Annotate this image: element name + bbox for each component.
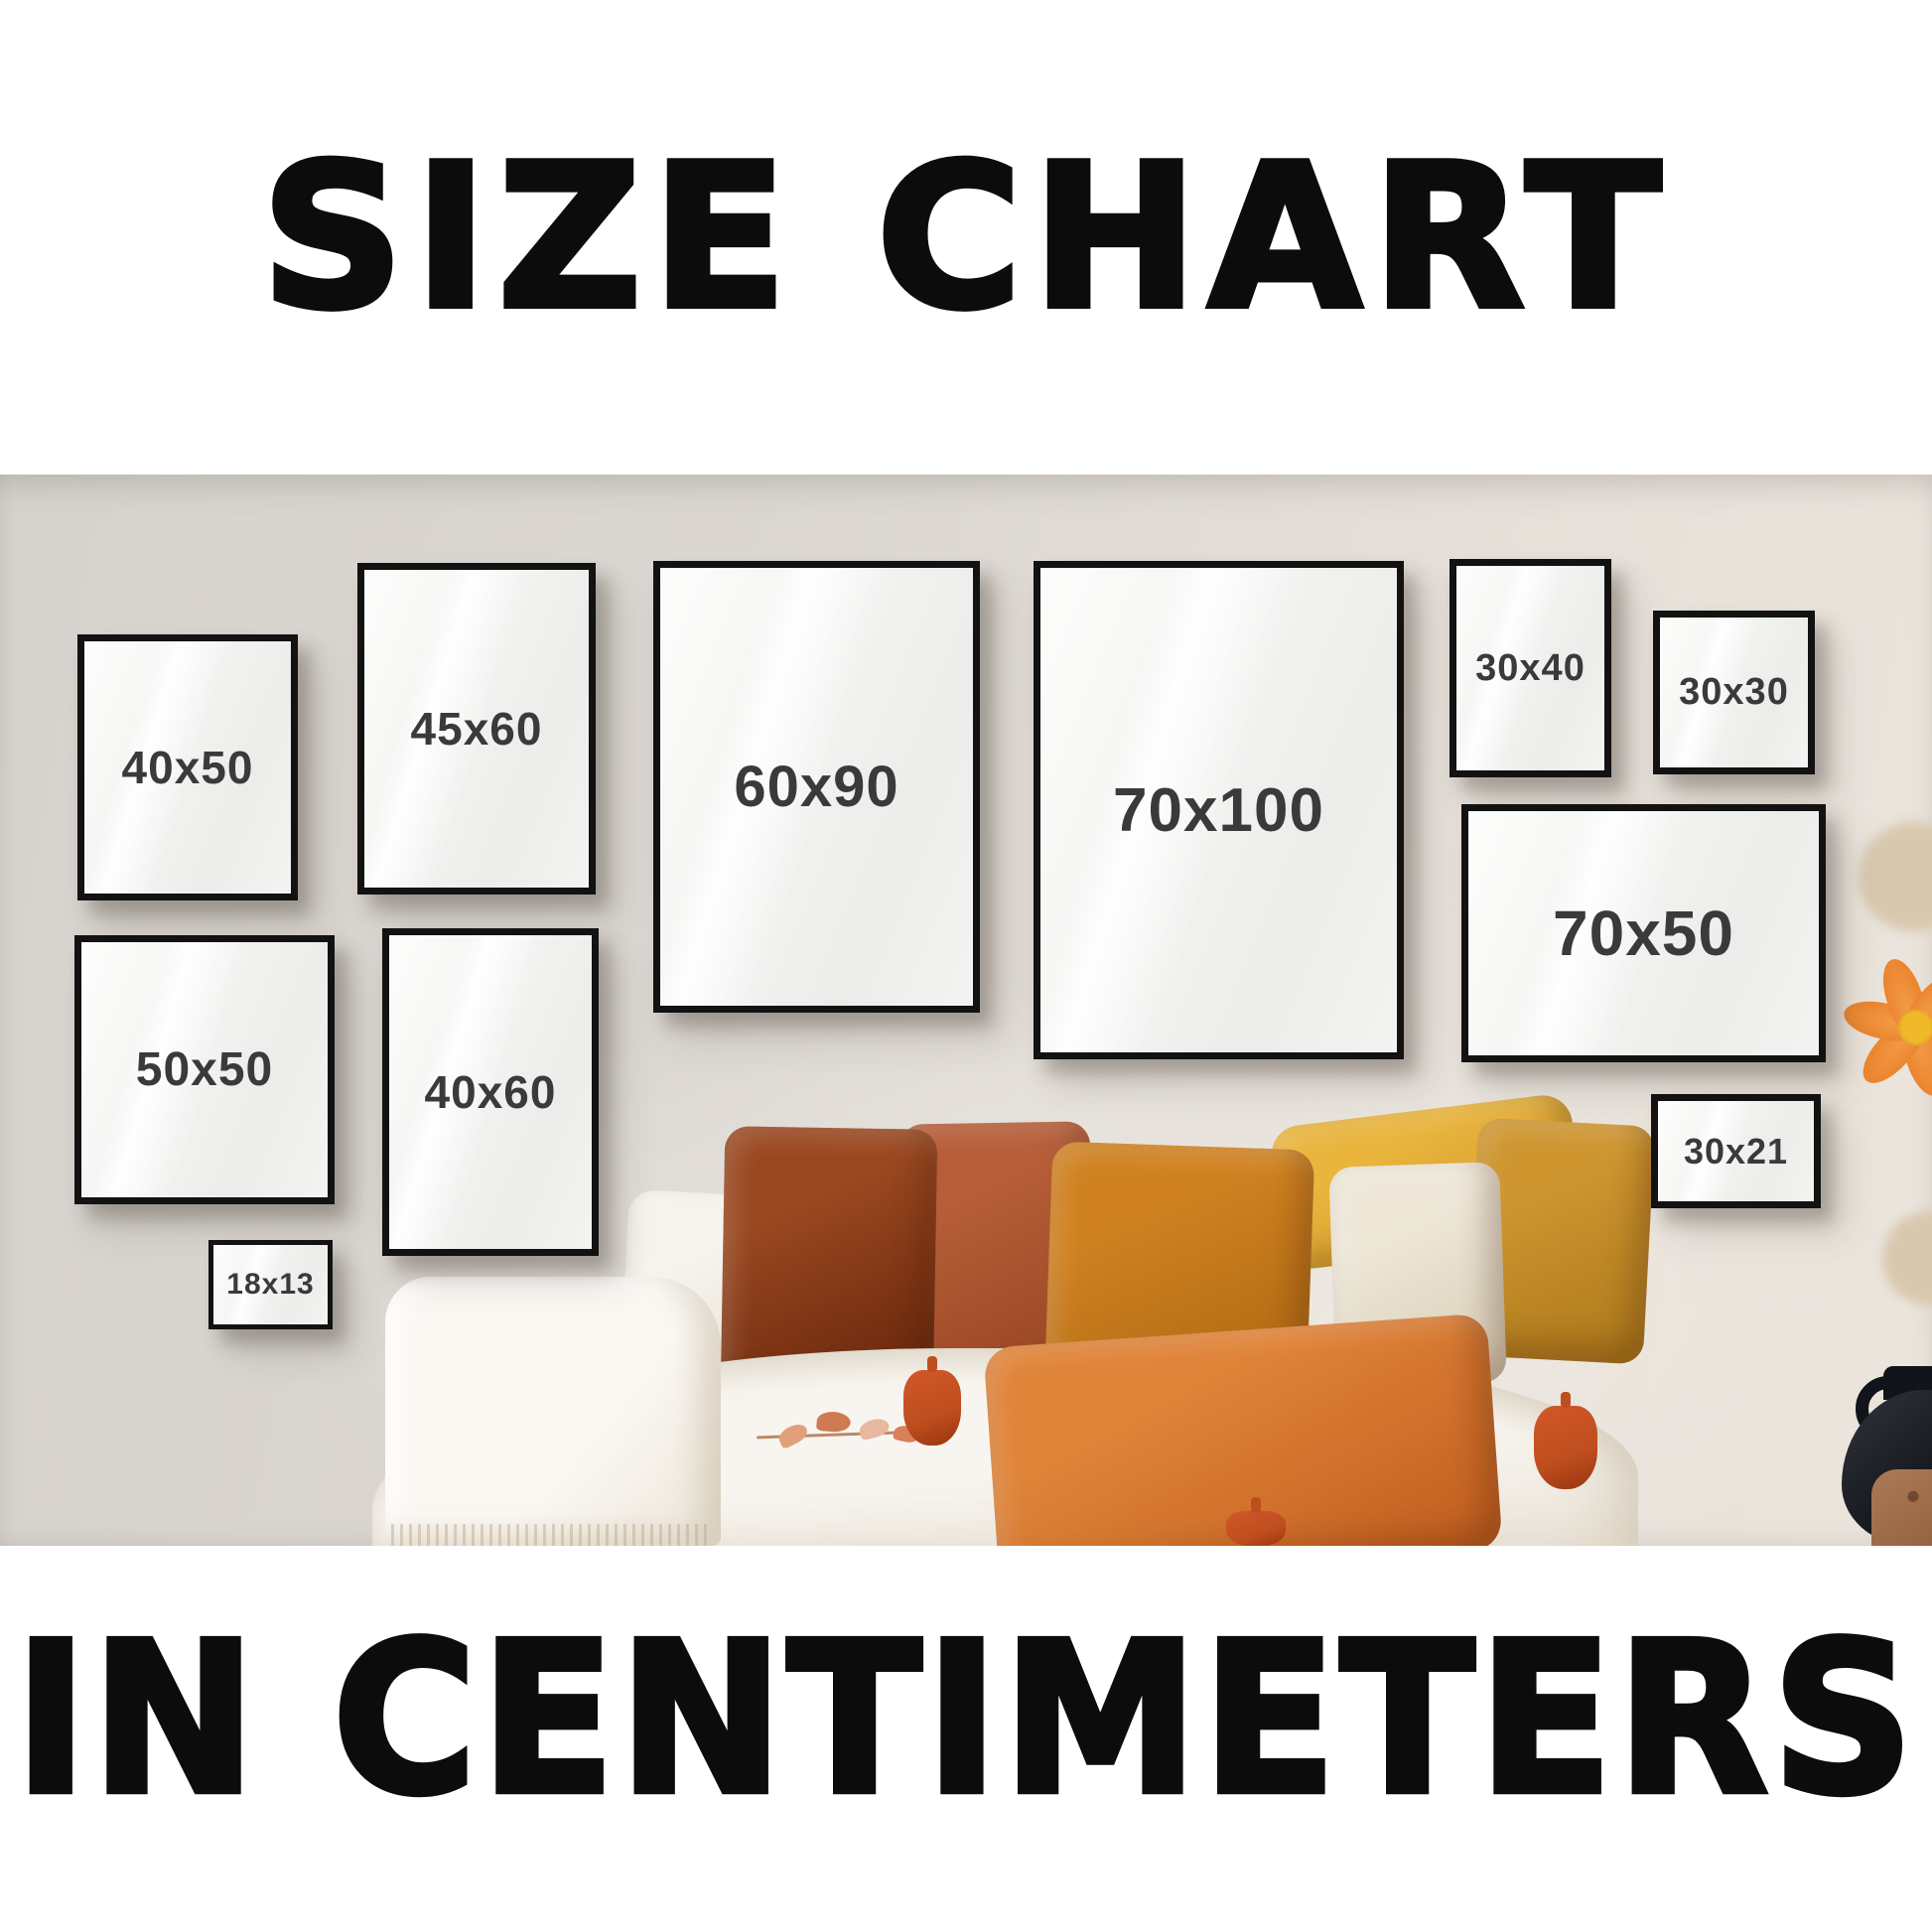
size-frame-30x40: 30x40 — [1449, 559, 1611, 777]
dried-grass-mid — [1882, 1211, 1932, 1306]
tan-basket — [1871, 1469, 1932, 1546]
size-chart-poster: SIZE CHART 40x5045x6060x9070x10030x4030x… — [0, 0, 1932, 1932]
poster-title: SIZE CHART — [261, 122, 1671, 353]
frame-size-label: 50x50 — [136, 1042, 273, 1097]
bedroom-photo: 40x5045x6060x9070x10030x4030x3070x5050x5… — [0, 475, 1932, 1546]
size-frame-50x50: 50x50 — [74, 935, 335, 1204]
flower-center — [1898, 1010, 1932, 1045]
size-frame-70x50: 70x50 — [1461, 804, 1826, 1062]
frame-size-label: 30x21 — [1684, 1131, 1788, 1173]
frame-size-label: 18x13 — [226, 1268, 314, 1302]
size-frame-60x90: 60x90 — [653, 561, 980, 1013]
size-frame-45x60: 45x60 — [357, 563, 596, 895]
frame-size-label: 30x40 — [1475, 647, 1586, 690]
size-frame-30x30: 30x30 — [1653, 611, 1815, 774]
sprig-bud — [775, 1421, 810, 1449]
size-frame-40x60: 40x60 — [382, 928, 599, 1256]
frame-size-label: 70x50 — [1553, 897, 1734, 970]
dried-grass-top — [1859, 822, 1932, 931]
orange-flower — [1832, 943, 1932, 1112]
frame-size-label: 40x60 — [425, 1065, 557, 1119]
tassel-bottom — [1226, 1511, 1286, 1546]
tassel-left — [903, 1370, 961, 1446]
bottom-band: IN CENTIMETERS — [0, 1546, 1932, 1932]
size-frame-18x13: 18x13 — [208, 1240, 333, 1329]
frame-size-label: 70x100 — [1113, 775, 1324, 846]
tassel-right — [1534, 1406, 1597, 1489]
sprig-bud — [816, 1411, 851, 1433]
sprig-bud — [858, 1417, 891, 1442]
top-band: SIZE CHART — [0, 0, 1932, 475]
size-frame-40x50: 40x50 — [77, 634, 298, 900]
white-throw-blanket — [385, 1277, 721, 1546]
frame-size-label: 30x30 — [1679, 671, 1789, 714]
frame-size-label: 40x50 — [122, 741, 254, 794]
size-frame-70x100: 70x100 — [1034, 561, 1404, 1059]
frame-size-label: 60x90 — [734, 754, 898, 820]
poster-subtitle: IN CENTIMETERS — [15, 1597, 1918, 1932]
size-frame-30x21: 30x21 — [1651, 1094, 1821, 1208]
frame-size-label: 45x60 — [411, 702, 543, 756]
